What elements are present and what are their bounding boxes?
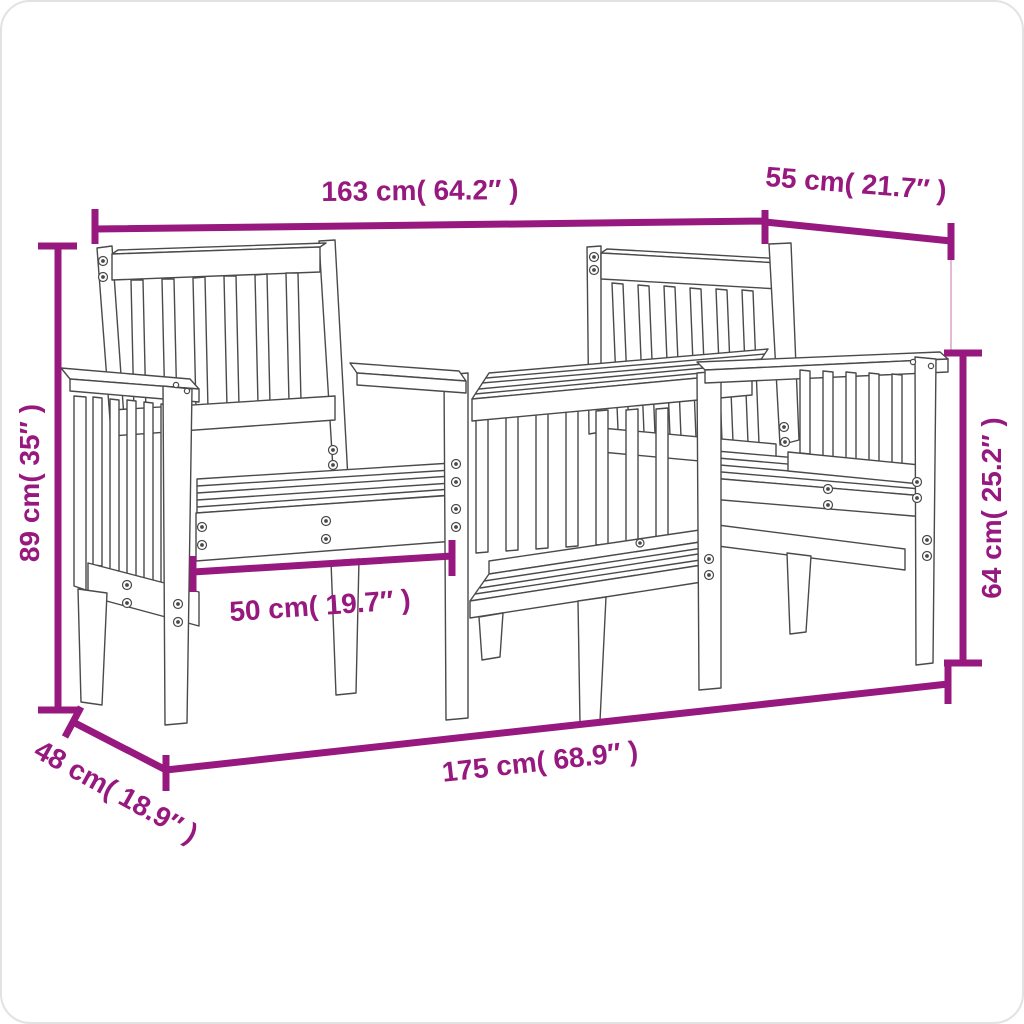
dim-overall-width-label: 163 cm( 64.2″ ) [321, 174, 518, 208]
dim-back-height-label: 89 cm( 35″ ) [14, 404, 46, 562]
left-chair-side [61, 368, 199, 725]
dim-overall-width-line [95, 209, 765, 244]
bench-line-drawing [0, 0, 1024, 1024]
bench [61, 240, 948, 725]
dim-armrest-height-label: 64 cm( 25.2″ ) [976, 417, 1008, 599]
dim-seat-depth-top-line [765, 222, 951, 260]
product-dimension-diagram: 163 cm( 64.2″ ) 55 cm( 21.7″ ) 89 cm( 35… [0, 0, 1024, 1024]
left-chair-seat [196, 463, 455, 695]
table-back-slats [476, 408, 668, 553]
left-chair-inner-armrest [350, 363, 466, 393]
